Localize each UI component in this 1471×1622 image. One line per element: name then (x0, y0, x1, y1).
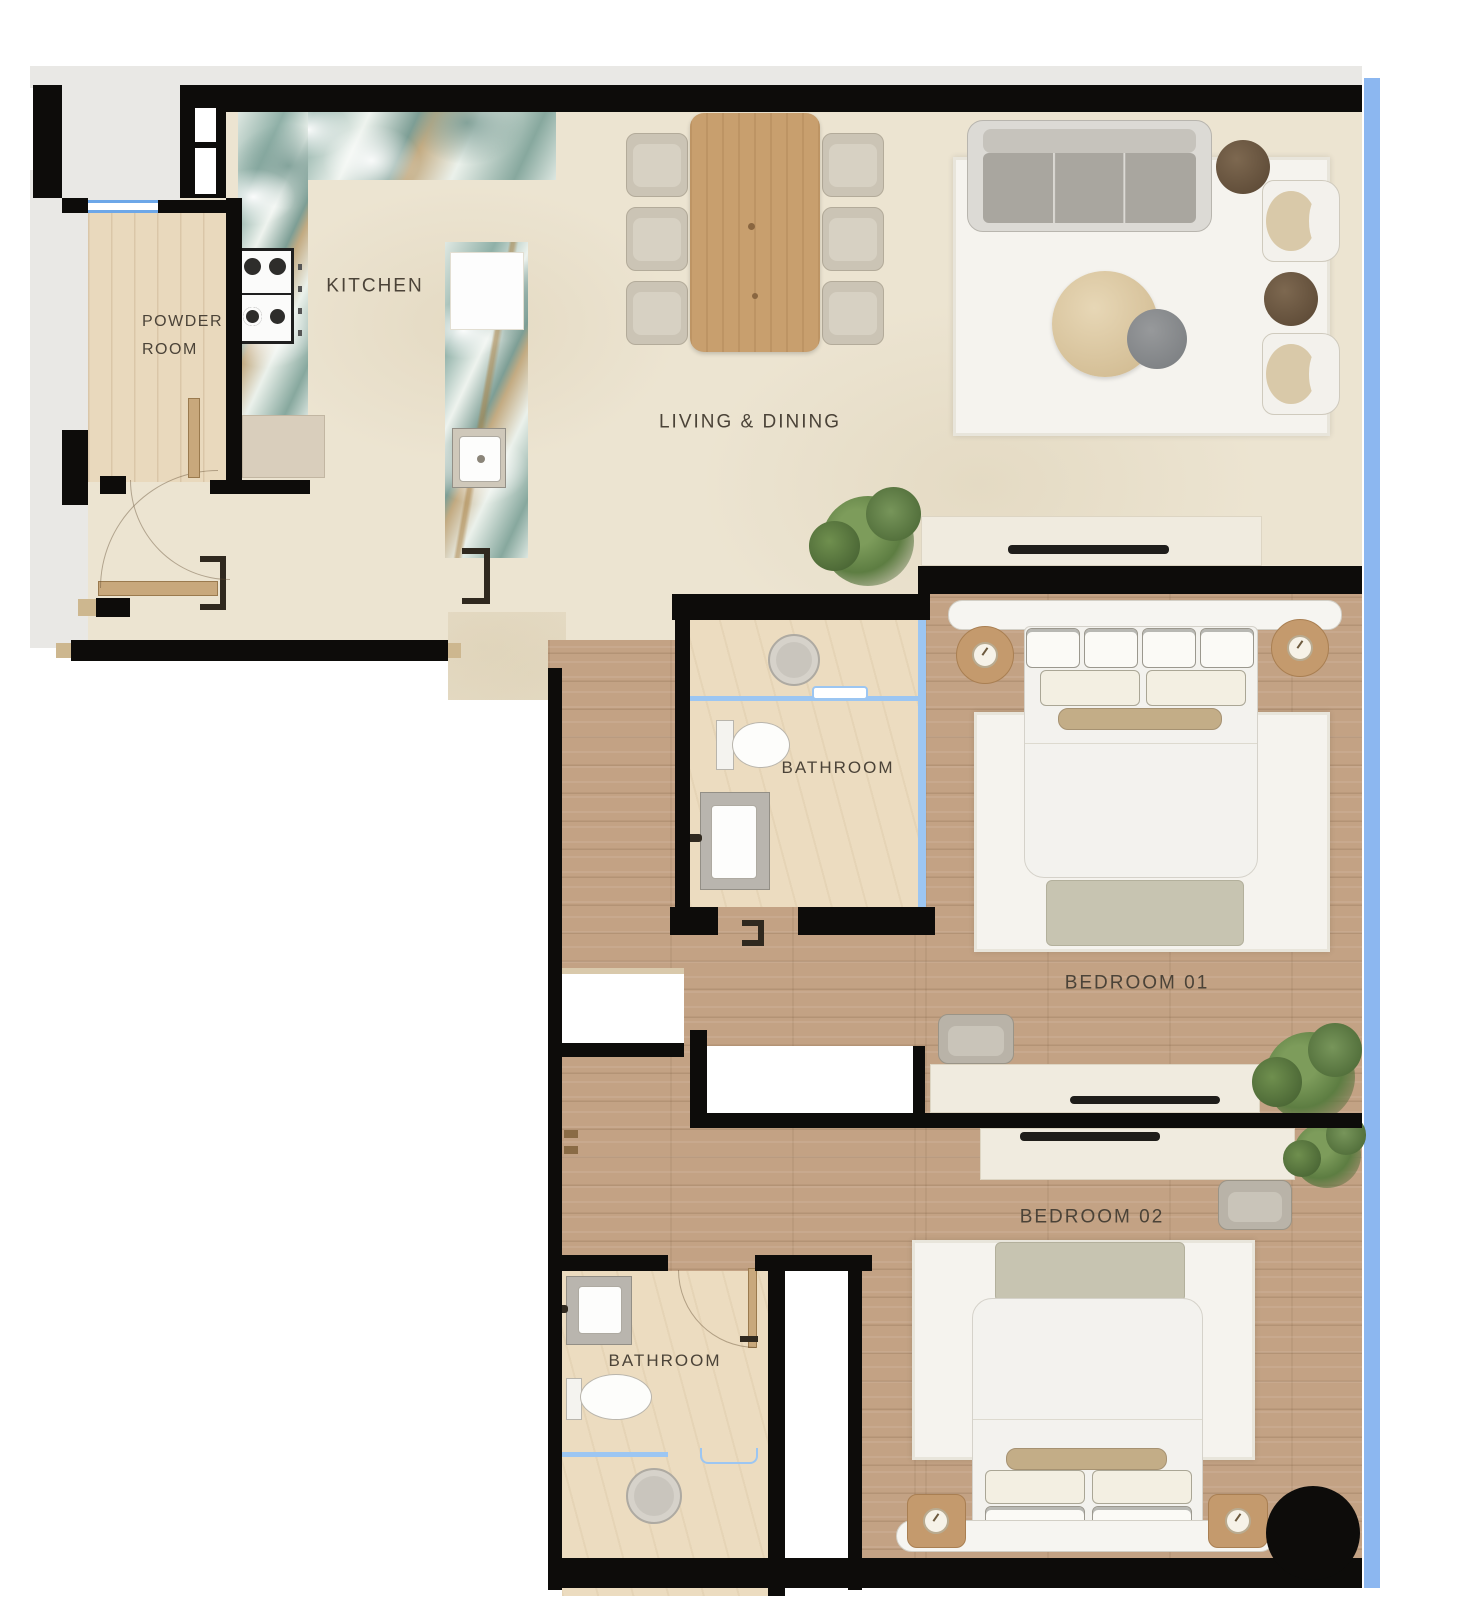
pillow (1146, 670, 1246, 706)
label-living-dining: LIVING & DINING (659, 411, 841, 436)
wall-bedroom-1-top (918, 566, 1362, 594)
label-bedroom-1: BEDROOM 01 (1065, 972, 1210, 997)
dining-chair (626, 207, 688, 271)
corner-column (1266, 1486, 1360, 1580)
wall-cap (448, 643, 461, 658)
dining-chair (822, 207, 884, 271)
dining-chair (626, 281, 688, 345)
coffee-table-small (1127, 309, 1187, 369)
pillow (1200, 628, 1254, 668)
wall-bathroom-2-right (768, 1271, 785, 1596)
plant-icon (822, 496, 914, 586)
wall (96, 598, 130, 617)
lamp-icon (1225, 1508, 1251, 1534)
tv-icon (1008, 545, 1169, 554)
wardrobe-bedroom-1 (707, 1046, 913, 1113)
kitchen-island-counter (450, 252, 524, 330)
tv-icon (1070, 1096, 1220, 1104)
wall-bathroom-1-left (675, 594, 690, 935)
wall (33, 85, 62, 198)
wall-slot (195, 148, 216, 194)
lamp-icon (972, 642, 998, 668)
outside-above-powder-room (62, 88, 180, 200)
tv-icon (1020, 1132, 1160, 1141)
dining-chair (822, 133, 884, 197)
powder-room-window (88, 200, 158, 213)
shower-shelf (812, 686, 868, 700)
closet-bedroom-2 (785, 1271, 848, 1590)
bed-1-foot-bench (1046, 880, 1244, 946)
wall-bottom (548, 1558, 1362, 1588)
outside-strip-left (30, 170, 88, 648)
door-hinge (484, 548, 490, 604)
stove-icon (234, 248, 294, 344)
bed-2-foot-bench (995, 1242, 1185, 1302)
side-table-round (1264, 272, 1318, 326)
shower-drain-icon (768, 634, 820, 686)
bathroom-1-sink-icon (700, 792, 770, 890)
label-bathroom-1: BATHROOM (782, 757, 895, 779)
toilet-bowl (580, 1374, 652, 1420)
label-kitchen: KITCHEN (326, 275, 423, 300)
label-powder-room: POWDER (142, 312, 223, 333)
plant-icon (1293, 1122, 1361, 1188)
shower-shelf (700, 1448, 758, 1464)
wall-marker (564, 1146, 578, 1154)
dining-chair (626, 133, 688, 197)
wall-corridor-left (548, 668, 562, 1590)
pillow (1142, 628, 1196, 668)
label-bathroom-2: BATHROOM (609, 1350, 722, 1372)
wall (100, 476, 126, 494)
label-bedroom-2: BEDROOM 02 (1020, 1206, 1165, 1231)
wall-top (180, 85, 1362, 112)
shower-glass-2 (562, 1452, 668, 1457)
closet-corridor (562, 968, 684, 1043)
bolster-pillow (1006, 1448, 1167, 1470)
wall-bathroom-1-top (672, 594, 930, 620)
wall-cap (78, 599, 96, 616)
bolster-pillow (1058, 708, 1222, 730)
balcony-glass-strip (1362, 78, 1382, 1588)
powder-room-door (188, 398, 200, 478)
wall-bathroom-1-bottom (670, 907, 718, 935)
wall-entry-bottom (71, 640, 448, 661)
lamp-icon (923, 1508, 949, 1534)
tv-console-living (921, 516, 1262, 566)
wall-marker (564, 1130, 578, 1138)
wall-bathroom-1-bottom (798, 907, 935, 935)
door-hinge (758, 920, 764, 946)
pillow (1084, 628, 1138, 668)
pillow (1026, 628, 1080, 668)
bathroom-1-glass-wall (918, 620, 926, 907)
kitchen-sink-icon (452, 428, 506, 488)
armchair (1262, 333, 1340, 415)
wall-cap (56, 643, 71, 658)
shower-glass-1 (690, 696, 918, 701)
dining-table (690, 113, 820, 352)
desk-chair (1218, 1180, 1292, 1230)
plant-icon (1265, 1032, 1355, 1122)
wall (690, 1030, 707, 1126)
pillow (1040, 670, 1140, 706)
armchair (1262, 180, 1340, 262)
stove-knobs (298, 260, 302, 336)
sofa (967, 120, 1212, 232)
wall-bedroom-divider (690, 1113, 1362, 1128)
wall (62, 430, 88, 505)
door-handle (740, 1336, 758, 1342)
lamp-icon (1287, 635, 1313, 661)
bathroom-2-sink-icon (566, 1276, 632, 1345)
wall (158, 200, 226, 213)
shower-drain-icon (626, 1468, 682, 1524)
kitchen-cabinet (242, 415, 325, 478)
floor-plan: POWDER ROOM KITCHEN LIVING & DINING BATH… (0, 0, 1471, 1622)
wall-closet-bottom (548, 1043, 684, 1057)
wall (913, 1046, 925, 1120)
pillow (985, 1470, 1085, 1504)
wall (62, 198, 88, 213)
side-table-round (1216, 140, 1270, 194)
wall-slot (195, 108, 216, 142)
desk-chair (938, 1014, 1014, 1064)
desk-bedroom-1 (930, 1064, 1260, 1113)
pillow (1092, 1470, 1192, 1504)
wall-powder-room-right (226, 198, 242, 482)
label-powder-room-2: ROOM (142, 340, 198, 361)
wall-bathroom-2-top (548, 1255, 668, 1271)
dining-chair (822, 281, 884, 345)
wall-bedroom-2-left (848, 1255, 862, 1590)
